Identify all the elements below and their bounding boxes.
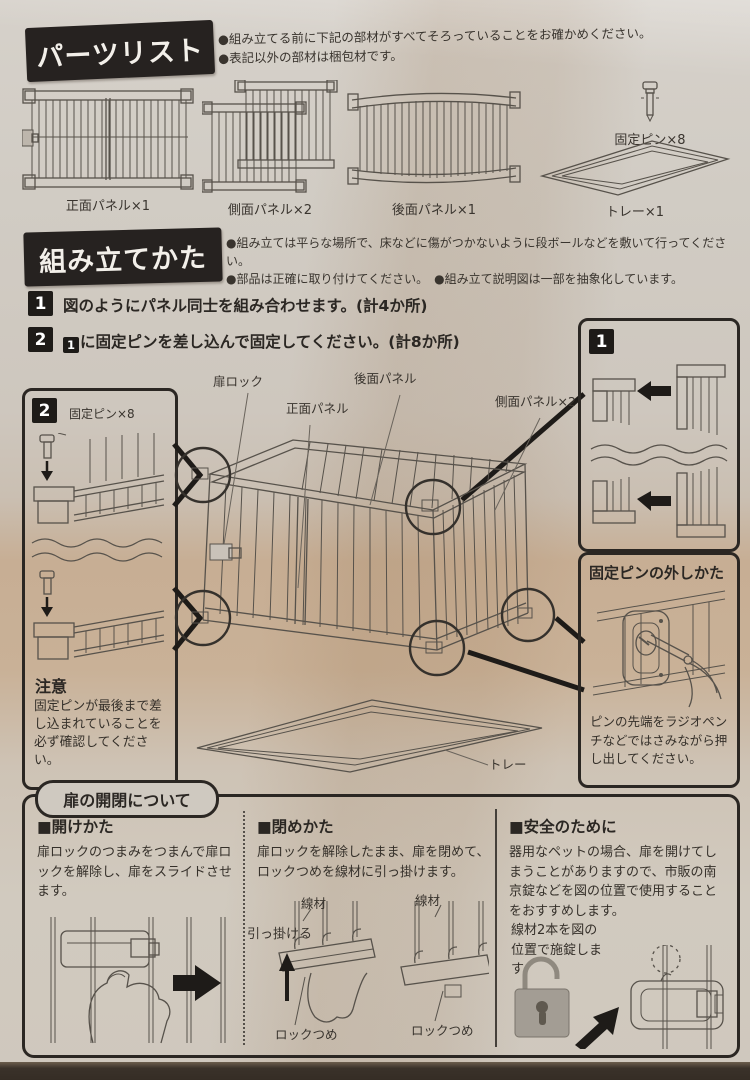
front-panel-figure: 正面パネル×1	[22, 88, 194, 214]
step-2-ref-number: 1	[63, 337, 79, 353]
parts-list-notes: ●組み立てる前に下記の部材がすべてそろっていることをお確かめください。 ●表記以…	[218, 23, 738, 68]
side-panel-label: 側面パネル×2	[495, 391, 576, 410]
box2-pin-label: 固定ピン×8	[69, 405, 135, 422]
back-panel-caption: 後面パネル×1	[392, 199, 476, 218]
cage-assembly-diagram	[150, 360, 586, 784]
open-door-drawing	[35, 917, 241, 1045]
tray-caption: トレー×1	[606, 201, 664, 220]
safety-text: 器用なペットの場合、扉を開けてしまうことがありますので、市販の南京錠などを図の位…	[509, 843, 729, 921]
assembly-title: 組み立てかた	[39, 235, 208, 278]
column-divider-solid	[495, 809, 497, 1047]
side-panel-figure: 側面パネル×2	[202, 80, 338, 218]
pin-removal-title: 固定ピンの外しかた	[589, 562, 731, 583]
front-panel-label: 正面パネル	[286, 398, 349, 417]
door-section-header: 扉の開閉について	[35, 780, 219, 818]
door-section-box: 扉の開閉について ■開けかた 扉ロックのつまみをつまんで扉ロックを解除し、扉をス…	[22, 794, 740, 1058]
side-panel-caption: 側面パネル×2	[228, 199, 312, 218]
assembly-note-2: ●部品は正確に取り付けてください。 ●組み立て説明図は一部を抽象化しています。	[226, 270, 741, 288]
safety-column: ■安全のために 器用なペットの場合、扉を開けてしまうことがありますので、市販の南…	[509, 815, 729, 921]
parts-list-title: パーツリスト	[35, 28, 204, 74]
box1-number: 1	[589, 329, 614, 354]
box2-number: 2	[32, 398, 57, 423]
back-panel-label: 後面パネル	[354, 368, 417, 387]
assembly-banner: 組み立てかた	[23, 227, 222, 286]
padlock-drawing	[511, 945, 731, 1049]
caution-text: 固定ピンが最後まで差し込まれていることを必ず確認してください。	[34, 698, 168, 771]
panel-join-drawing	[589, 363, 729, 541]
wire-label-2: 線材	[415, 890, 440, 909]
pin-removal-box: 固定ピンの外しかた ピンの先端をラジオペンチなどではさみながら押し出してください…	[578, 552, 740, 788]
step-1-text: 図のようにパネル同士を組み合わせます。(計4か所)	[63, 291, 427, 316]
step-1-number: 1	[28, 291, 53, 316]
door-section-title: 扉の開閉について	[63, 787, 191, 811]
door-lock-label: 扉ロック	[213, 371, 263, 390]
back-panel-figure: 後面パネル×1	[346, 84, 522, 218]
pliers-drawing	[589, 587, 729, 709]
close-column: ■閉めかた 扉ロックを解除したまま、扉を閉めて、ロックつめを線材に引っ掛けます。	[257, 815, 491, 882]
close-text: 扉ロックを解除したまま、扉を閉めて、ロックつめを線材に引っ掛けます。	[257, 843, 491, 882]
open-column: ■開けかた 扉ロックのつまみをつまんで扉ロックを解除し、扉をスライドさせます。	[37, 815, 239, 902]
tray-figure: トレー×1	[536, 136, 734, 220]
pin-drawing	[638, 80, 662, 126]
step-1: 1 図のようにパネル同士を組み合わせます。(計4か所)	[28, 291, 688, 316]
safety-heading: ■安全のために	[509, 815, 729, 837]
front-panel-drawing	[22, 88, 194, 192]
instruction-sheet: パーツリスト ●組み立てる前に下記の部材がすべてそろっていることをお確かめくださ…	[0, 0, 750, 1080]
pin-removal-text: ピンの先端をラジオペンチなどではさみながら押し出してください。	[590, 713, 728, 769]
pin-insert-drawing	[30, 433, 168, 669]
claw-label-1: ロックつめ	[275, 1024, 338, 1043]
close-heading: ■閉めかた	[257, 815, 491, 837]
front-panel-caption: 正面パネル×1	[66, 195, 150, 214]
tray-label: トレー	[489, 754, 527, 773]
wire-label-1: 線材	[301, 893, 326, 912]
open-heading: ■開けかた	[37, 815, 239, 837]
step-2-number: 2	[28, 327, 53, 352]
tray-drawing	[536, 136, 734, 198]
caution-title: 注意	[35, 673, 67, 697]
open-text: 扉ロックのつまみをつまんで扉ロックを解除し、扉をスライドさせます。	[37, 843, 239, 902]
assembly-notes: ●組み立ては平らな場所で、床などに傷がつかないように段ボールなどを敷いて行ってく…	[226, 234, 741, 288]
step-1-detail-box: 1	[578, 318, 740, 552]
step-2-text: に固定ピンを差し込んで固定してください。(計8か所)	[80, 333, 460, 351]
photo-table-edge	[0, 1062, 750, 1080]
side-panel-drawing	[202, 80, 338, 196]
parts-list-banner: パーツリスト	[25, 20, 215, 82]
claw-label-2: ロックつめ	[411, 1020, 474, 1039]
back-panel-drawing	[346, 84, 522, 196]
assembly-note-1: ●組み立ては平らな場所で、床などに傷がつかないように段ボールなどを敷いて行ってく…	[226, 234, 741, 270]
hook-label: 引っ掛ける	[247, 923, 312, 942]
column-divider-dotted	[243, 811, 245, 1045]
